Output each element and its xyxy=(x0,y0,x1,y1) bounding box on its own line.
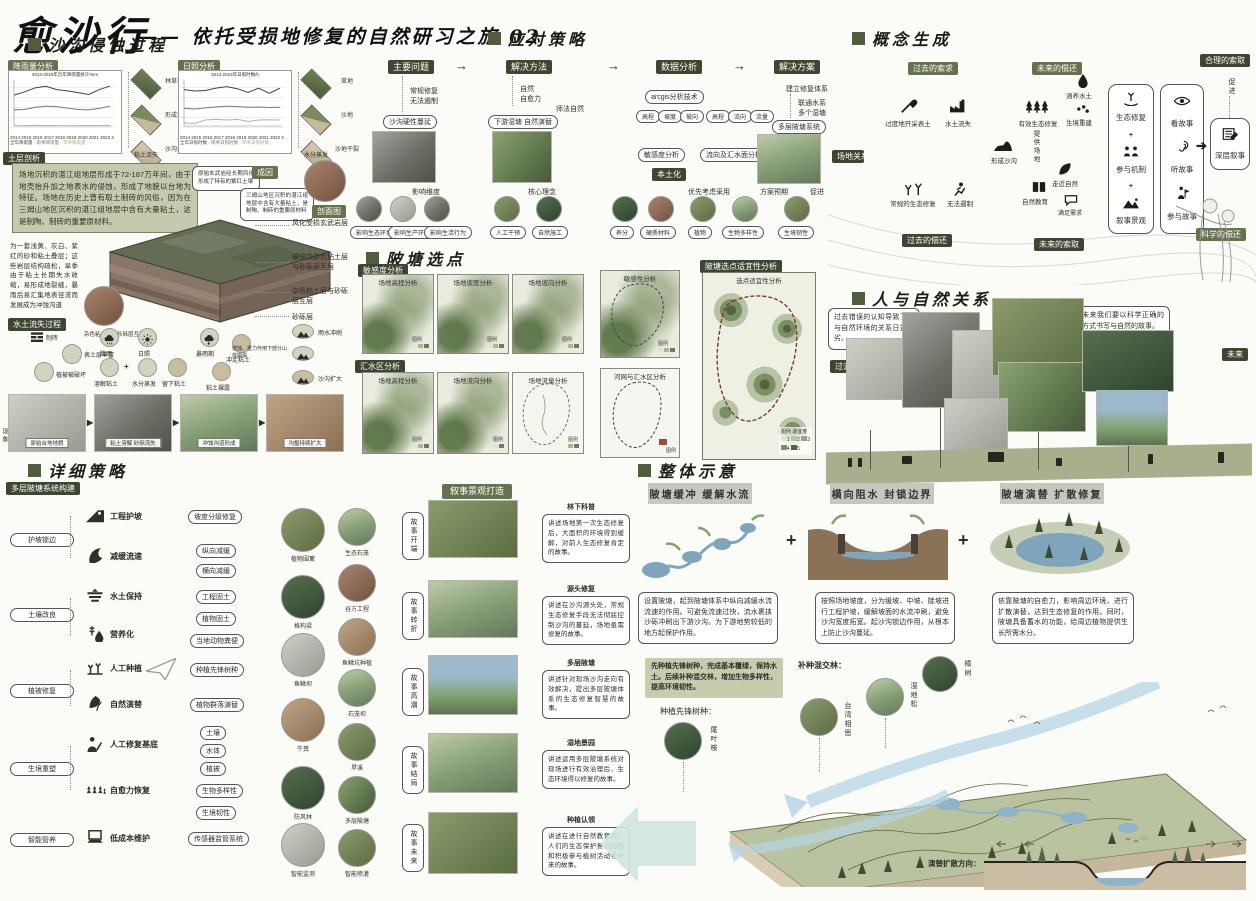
localization-tag: 本土化 xyxy=(652,168,686,181)
future-tag: 未来 xyxy=(1222,348,1248,361)
measure-label: 智能喷灌 xyxy=(328,869,386,878)
photo-stand xyxy=(1128,446,1129,472)
sensitivity-analysis-chip: 敏感度分析 xyxy=(638,148,685,162)
layer-label: 被侵蚀杂色粘土层与砂砾层互层 xyxy=(292,252,354,272)
method-label: 人工干预 xyxy=(490,226,526,239)
conserve-water-label: 涵养水土 xyxy=(1066,90,1102,100)
plus-sign: + xyxy=(124,362,129,371)
tree-line xyxy=(70,598,71,636)
measure-photo xyxy=(281,766,325,810)
legend-series-2: 雨季降雨量 xyxy=(37,140,60,145)
biodiversity-photo xyxy=(732,196,758,222)
rain-chart: 2013-2023年历年降雨量统计/mm 2014 2015 2016 2017… xyxy=(8,70,122,154)
mixed-forest-label: 补种混交林： xyxy=(798,660,846,671)
tree-line xyxy=(70,746,71,790)
story-title: 源头修复 xyxy=(545,584,617,594)
section-overall: 整体示意 xyxy=(638,458,738,482)
group-habitat: 生境重塑 xyxy=(10,762,74,776)
stage-label: 沟壑持续扩大 xyxy=(283,438,326,448)
section-detail-strategy: 详细策略 xyxy=(28,458,128,482)
legend-label: 图例 xyxy=(487,337,497,343)
note: 师法自然 xyxy=(556,104,584,114)
solution-photo xyxy=(757,134,821,184)
map-title: 场地坡度分析 xyxy=(438,277,508,287)
cross-section-diagram xyxy=(808,512,948,580)
note: 多个湿塘 xyxy=(798,108,826,118)
paper-plane-icon xyxy=(146,658,176,680)
concept-header-1: 陂塘缓冲 缓解水流 xyxy=(648,483,752,504)
cannot-contain-label: 无法遏制 xyxy=(938,198,982,208)
future-repay-tag: 未来的偿还 xyxy=(1032,62,1082,75)
flow-step-method: 解决方法 xyxy=(506,60,552,74)
map-title: 河网与汇水区分析 xyxy=(601,371,679,381)
measure-label: 石笼坝 xyxy=(328,709,386,718)
deep-narrative-box: 深层叙事 xyxy=(1210,118,1250,170)
strategy-chip: 植被 xyxy=(200,762,226,776)
collapse-label: 侵蚀、重力作用下部分山体崩塌 xyxy=(232,346,290,360)
site-relation-tag: 场地关系 xyxy=(832,150,864,163)
collapse-mound-icon xyxy=(292,346,314,361)
legend-series-3: 旱季日照时数 xyxy=(242,140,269,145)
suitability-legend: 图例 适宜度 1 2 3 4 5 xyxy=(779,427,812,456)
future-demand-tag: 未来的索取 xyxy=(1034,238,1084,251)
clay-left-label: 留下粘土 xyxy=(162,379,186,388)
factor-box: 坡度 xyxy=(658,110,682,123)
measure-photo xyxy=(281,508,325,552)
note: 建立修复体系 xyxy=(786,84,828,94)
forest-row-icon xyxy=(86,782,106,797)
dissolve-clay-icon xyxy=(100,358,119,377)
insects-icon xyxy=(1076,103,1090,115)
vegetation-broken-icon xyxy=(34,362,54,382)
pen-note-icon xyxy=(1222,127,1238,141)
section-bullet-icon xyxy=(638,464,651,477)
strata-inset-photo xyxy=(304,160,346,202)
satisfy-needs-label: 满足需求 xyxy=(1058,208,1094,217)
stage-arrow: ▶ xyxy=(87,418,93,427)
effective-restoration-label: 有效生态修复 xyxy=(1008,118,1068,128)
factory-icon xyxy=(950,98,966,114)
slope-protection-icon xyxy=(86,508,104,523)
pillar-item: 生态修复 xyxy=(1116,112,1146,123)
section-human-nature: 人与自然关系 xyxy=(852,286,992,310)
stage-arrow: ▶ xyxy=(173,418,179,427)
pointing-people-sketch xyxy=(1158,188,1253,284)
gully-spread-chip: 沙沟硬性蔓延 xyxy=(383,115,437,129)
item-label: 自然演替 xyxy=(110,699,142,710)
flow-arrow: → xyxy=(607,58,620,73)
strategy-chip: 横向减缓 xyxy=(196,564,236,578)
sand-plot-icon xyxy=(300,104,331,135)
connector xyxy=(683,762,684,792)
expectation-label: 方案预期 xyxy=(760,187,788,197)
impact-production-photo xyxy=(390,196,416,222)
map-river-catchment: 河网与汇水区分析图例 xyxy=(600,368,680,458)
section-title: 应对策略 xyxy=(508,26,588,50)
strategy-chip: 植物群落演替 xyxy=(190,698,244,712)
measure-label: 智能监测 xyxy=(273,869,333,878)
connector xyxy=(512,76,513,106)
strategy-chip: 坡度分级修复 xyxy=(188,510,242,524)
plus-sign: + xyxy=(958,530,969,551)
plus-sign: + xyxy=(1129,181,1133,190)
provide-site-label: 提供场地 xyxy=(1030,130,1040,170)
story-text: 讲述运用多层陂塘系统对现场进行有效治理后，生态环境得以修复的故事。 xyxy=(542,750,630,789)
deep-narrative-label: 深层叙事 xyxy=(1215,150,1245,161)
item-label: 人工修复基底 xyxy=(110,739,158,750)
sun-chart-plot xyxy=(180,78,284,130)
overmining-label: 过度地开采表土 xyxy=(878,118,938,128)
ground-band xyxy=(826,444,1252,485)
legend-series-2: 雨季日照时数 xyxy=(211,140,238,145)
measure-photo xyxy=(338,508,376,546)
legend-label: 图例 xyxy=(412,337,422,343)
group-slope-lock: 护坡锁边 xyxy=(10,533,74,547)
section-title: 整体示意 xyxy=(658,458,738,482)
gully-forming-plot-icon xyxy=(130,104,161,135)
rain-erosion-label: 雨水冲刷 xyxy=(318,328,342,337)
site-boundary xyxy=(601,369,681,459)
story-photo xyxy=(428,500,518,558)
leader-line xyxy=(255,225,289,226)
legend-value: 5 xyxy=(797,446,800,452)
eye-icon xyxy=(1174,96,1190,106)
laptop-icon xyxy=(86,830,104,845)
story-stage: 故事转折 xyxy=(402,592,424,640)
farmer-silhouette xyxy=(1056,458,1062,466)
erosion-mound-icon xyxy=(292,324,314,339)
stage-photo-3: 冲蚀沟道形成 xyxy=(180,394,258,452)
measure-label: 旱溪 xyxy=(328,763,386,772)
impact-life-photo xyxy=(424,196,450,222)
legend-series-1: 全年降雨量 xyxy=(10,140,33,145)
pillar-item: 参与机制 xyxy=(1116,164,1146,175)
leader-line xyxy=(255,262,289,263)
impact-eco-photo xyxy=(356,196,382,222)
collage-photo-grazing xyxy=(1082,330,1174,392)
concept-text-3: 依靠陂塘的自愈力，影响周边环境，进行扩散演替，达到生态修复的作用。同时，陂塘具备… xyxy=(992,592,1134,644)
tree-line xyxy=(70,670,71,706)
measure-label: 植物围篱 xyxy=(273,554,333,563)
poster-canvas: 愈沙行 —— 依托受损地修复的自然研习之旅 02 沙沟侵蚀过程 降雨量分析 20… xyxy=(0,0,1256,901)
item-label: 工程护坡 xyxy=(110,511,142,522)
measure-photo xyxy=(338,776,376,814)
measure-photo xyxy=(281,575,325,619)
strategy-chip: 植物固土 xyxy=(196,612,236,626)
leaf-icon xyxy=(1058,162,1072,176)
normal-restoration-label: 常规的生态修复 xyxy=(882,198,944,208)
divider xyxy=(298,72,299,148)
factor-box: 流量 xyxy=(750,110,774,123)
flow-arrow: → xyxy=(455,58,468,73)
tree-line xyxy=(70,516,71,558)
legend-value: 3 xyxy=(807,437,810,443)
legend-series-3: 旱季降雨量 xyxy=(63,140,86,145)
story-stage: 故事未来 xyxy=(402,824,424,872)
item-label: 自愈力恢复 xyxy=(110,785,150,796)
slow-flow-icon xyxy=(88,548,104,563)
strategy-chip: 生境韧性 xyxy=(196,806,236,820)
element-label: 养分 xyxy=(610,226,634,239)
map-elevation: 场地高程分析图例 xyxy=(362,274,434,354)
priority-label: 优先考虑采用 xyxy=(688,187,730,197)
legend-label: 图例 xyxy=(562,337,572,343)
legend-value: 2 xyxy=(797,437,800,443)
map-title: 场地流量分析 xyxy=(513,375,583,385)
shovel-icon xyxy=(900,96,918,114)
measure-photo xyxy=(338,564,376,602)
habitat-rebuild-label: 生境重建 xyxy=(1066,117,1102,127)
speech-bubble-icon xyxy=(1064,194,1078,206)
collage-photo-buffalo xyxy=(944,398,1008,456)
worker-icon xyxy=(86,736,103,752)
section-bullet-icon xyxy=(852,292,865,305)
sprout-hand-icon xyxy=(1123,92,1139,106)
measure-photo xyxy=(338,669,376,707)
photo-stand xyxy=(870,430,871,470)
vegetation-broken-label: 植被被破坏 xyxy=(56,370,86,379)
sand-textbox: 为一套浅黄、灰白、紫红的砂和粘土叠层；这些岩层结构疏松，旱季由于粘土长期失水收缩… xyxy=(10,242,78,310)
succession-leaf-icon xyxy=(88,696,103,711)
rain-label: 降雨 xyxy=(100,349,112,358)
impact-label: 影响生活行为 xyxy=(424,226,472,239)
topsoil-icon xyxy=(62,344,82,364)
strategy-chip: 传感器监管系统 xyxy=(188,832,249,846)
evaporation-icon xyxy=(138,358,157,377)
group-smart: 智能管养 xyxy=(10,833,74,847)
map-legend: 图例 xyxy=(487,337,505,350)
section-title: 概念生成 xyxy=(872,26,952,50)
method-photo xyxy=(492,131,552,183)
truck-silhouette xyxy=(988,452,1004,462)
section-bullet-icon xyxy=(28,38,41,51)
succession-cross-section xyxy=(976,838,1254,894)
measure-photo xyxy=(281,823,325,867)
concept-header-3: 陂塘演替 扩散修复 xyxy=(1000,483,1104,504)
soil-loss-label: 水土流失 xyxy=(936,118,980,128)
legend-label: 图例 xyxy=(658,341,668,347)
connector xyxy=(1229,96,1230,118)
group-vegetation: 植被修复 xyxy=(10,684,74,698)
story-stage: 故事结局 xyxy=(402,746,424,794)
leader-line xyxy=(255,292,289,293)
connector xyxy=(402,76,403,112)
strategy-chip: 水体 xyxy=(200,744,226,758)
map-sensitivity: 敏感性分析图例 xyxy=(600,270,680,358)
planting-icon xyxy=(86,660,104,676)
group-soil-improve: 土壤改良 xyxy=(10,608,74,622)
legend-value: 1 xyxy=(787,437,790,443)
plant-photo xyxy=(690,196,716,222)
pillar-item: 叙事景观 xyxy=(1116,215,1146,226)
story-photo xyxy=(428,812,518,874)
promote-label: 促进 xyxy=(810,187,824,197)
storm-label: 暴雨期 xyxy=(196,349,214,358)
element-label: 生境韧性 xyxy=(778,226,814,239)
stage-label: 原始台地地貌 xyxy=(25,438,68,448)
section-strategy: 应对策略 xyxy=(488,26,588,50)
measure-photo xyxy=(338,723,376,761)
map-title: 场地流向分析 xyxy=(438,375,508,385)
pillar-item: 听故事 xyxy=(1171,164,1194,175)
cause-chip: 成因 xyxy=(252,166,278,179)
story-text: 讲述针对现场沙沟走向有效解决，提出多层陂塘体系的生态修复智慧的故事。 xyxy=(542,670,630,719)
map-legend: 图例 xyxy=(658,341,676,354)
stage-arrow: ▶ xyxy=(259,418,265,427)
pond-system-tag: 多层陂塘系统构建 xyxy=(6,482,80,495)
gully-expand-label: 沙沟扩大 xyxy=(318,374,342,383)
map-suitability: 选点适宜性分析 图例 适宜度 1 2 3 4 5 xyxy=(702,272,816,460)
phenomenon-label: 现象 xyxy=(0,428,9,444)
measure-label: 鱼鳞坑种植 xyxy=(328,658,386,667)
map-aspect: 场地坡向分析图例 xyxy=(512,274,584,354)
plus-sign: + xyxy=(786,530,797,551)
diamond-label: 沙地 xyxy=(332,110,362,119)
legend-label: 图例 xyxy=(666,448,676,454)
measure-photo xyxy=(281,698,325,742)
map-title: 场地坡向分析 xyxy=(513,277,583,287)
pillar-item: 看故事 xyxy=(1171,118,1194,129)
factor-box: 高程 xyxy=(706,110,730,123)
stage-label: 粘土溶解 砂砾流失 xyxy=(105,438,161,448)
flow-arrow: ➔ xyxy=(1196,138,1207,154)
landscape-icon xyxy=(1123,197,1139,209)
section-concept: 概念生成 xyxy=(852,26,952,50)
map-title: 敏感性分析 xyxy=(601,273,679,283)
concept-text-2: 按照场地坡度，分为缓坡、中坡、陡坡进行工程护坡，缓解坡面的水流冲刷，避免沙沟宽度… xyxy=(815,592,955,644)
sun-icon xyxy=(138,328,157,347)
rain-chart-plot xyxy=(10,78,114,130)
map-legend: 图例 xyxy=(412,337,430,350)
evaporation-label: 水分蒸发 xyxy=(132,379,156,388)
nature-education-label: 自然教育 xyxy=(1022,196,1058,206)
note: 自然 xyxy=(520,84,534,94)
sunlight-label: 日照 xyxy=(138,349,150,358)
sun-caption: 水分蒸发 xyxy=(296,150,336,159)
clay-photo xyxy=(84,286,124,326)
measure-photo xyxy=(281,633,325,677)
legend-value: 4 xyxy=(787,446,790,452)
measure-photo xyxy=(338,829,376,867)
digger-silhouette xyxy=(902,456,912,464)
reasonable-demand-tag: 合理的索取 xyxy=(1200,54,1250,67)
flow-step-problem: 主要问题 xyxy=(388,60,434,74)
story-landscape-tag: 叙事景观打造 xyxy=(442,484,512,499)
resilience-photo xyxy=(784,196,810,222)
story-photo xyxy=(428,733,518,793)
item-label: 人工种植 xyxy=(110,663,142,674)
manual-intervention-photo xyxy=(494,196,520,222)
measure-label: 谷方工程 xyxy=(328,604,386,613)
promote-vertical-label: 促进 xyxy=(1226,78,1236,108)
map-elevation-2: 场地高程分析图例 xyxy=(362,372,434,454)
story-title: 林下科普 xyxy=(545,502,617,512)
collage-photo-aerial xyxy=(998,362,1086,432)
storm-cloud-icon xyxy=(200,328,219,347)
photo-stand xyxy=(940,408,941,468)
direction-label: 演替扩散方向： xyxy=(928,858,981,869)
pond-chain-diagram xyxy=(640,512,772,580)
past-repay-tag: 过去的偿还 xyxy=(902,234,952,247)
runner-icon xyxy=(952,182,967,197)
forest-icon xyxy=(1026,96,1048,114)
concept-text-1: 设置陂塘，起到陂塘体系中纵向减缓水流流速的作用。可避免流速过快，流水裹挟沙砾冲刷… xyxy=(638,592,778,644)
poster-subtitle: —— 依托受损地修复的自然研习之旅 02 xyxy=(138,22,542,49)
story-title: 湿地景园 xyxy=(545,738,617,748)
diamond-label: 沙地干裂 xyxy=(332,144,362,153)
strategy-chip: 生物多样性 xyxy=(196,784,243,798)
legend-title: 适宜度 xyxy=(792,429,807,435)
flow-step-analysis: 数据分析 xyxy=(656,60,702,74)
spread-direction-arrow xyxy=(596,806,696,886)
factor-box: 高程 xyxy=(636,110,660,123)
terrace-icon xyxy=(86,588,104,603)
map-flow-direction: 场地流向分析图例 xyxy=(437,372,509,454)
collage-photo-park xyxy=(1096,390,1168,446)
wetland-succession-chip: 下游湿塘 自然演替 xyxy=(488,115,558,129)
measure-label: 格构梁 xyxy=(273,621,333,630)
dune-icon xyxy=(994,138,1012,152)
flow-arrow: → xyxy=(733,58,746,73)
legend-label: 图例 xyxy=(412,437,422,443)
vegetated-plot-icon xyxy=(130,68,161,99)
layer-label: 砂砾层 xyxy=(292,312,354,322)
layer-label: 风化受损玄武岩层 xyxy=(292,218,354,228)
strategy-chip: 种植先锋树种 xyxy=(190,663,244,677)
factor-box: 坡向 xyxy=(680,110,704,123)
story-text: 讲述场地第一次生态修复后，大面积的环境得到缓解，对前人生态修复肯定的故事。 xyxy=(542,514,630,563)
map-legend: 图例 xyxy=(562,337,580,350)
element-label: 植物 xyxy=(688,226,712,239)
book-icon xyxy=(1032,180,1046,194)
item-label: 营养化 xyxy=(110,629,134,640)
measure-photo xyxy=(338,618,376,656)
story-photo xyxy=(428,655,518,715)
grass-plot-icon xyxy=(300,68,331,99)
story-title: 多层陂塘 xyxy=(545,658,617,668)
plus-sign: + xyxy=(1129,130,1133,139)
map-flow-volume: 场地流量分析图例 xyxy=(512,372,584,454)
map-title: 场地高程分析 xyxy=(363,375,433,385)
multilayer-pond-chip: 多层陂塘系统 xyxy=(772,120,826,134)
ear-icon xyxy=(1176,140,1189,153)
story-photo xyxy=(428,580,518,638)
section-title: 沙沟侵蚀过程 xyxy=(48,32,168,56)
section-bullet-icon xyxy=(852,32,865,45)
brick-label: 制砖 xyxy=(46,333,58,342)
measure-label: 牛粪 xyxy=(273,744,333,753)
factor-box: 流向 xyxy=(728,110,752,123)
map-legend: 图例 xyxy=(493,437,505,450)
strategy-chip: 土壤 xyxy=(200,726,226,740)
strategy-chip: 工程固土 xyxy=(196,590,236,604)
item-label: 水土保持 xyxy=(110,591,142,602)
map-legend: 图例 xyxy=(568,437,580,450)
section-bullet-icon xyxy=(28,464,41,477)
section-title: 详细策略 xyxy=(48,458,128,482)
section-title: 人与自然关系 xyxy=(872,286,992,310)
gully-formed-label: 形成沙沟 xyxy=(984,155,1024,165)
person-silhouette xyxy=(848,458,852,467)
map-legend: 图例 xyxy=(412,437,430,450)
problem-photo xyxy=(372,131,436,183)
map-legend: 图例 xyxy=(666,448,676,455)
past-demand-tag: 过去的索求 xyxy=(908,62,958,75)
legend-series-1: 全年日照时数 xyxy=(180,140,207,145)
natural-construction-photo xyxy=(536,196,562,222)
note: 联通水系 xyxy=(798,98,826,108)
method-label: 自然施工 xyxy=(532,226,568,239)
